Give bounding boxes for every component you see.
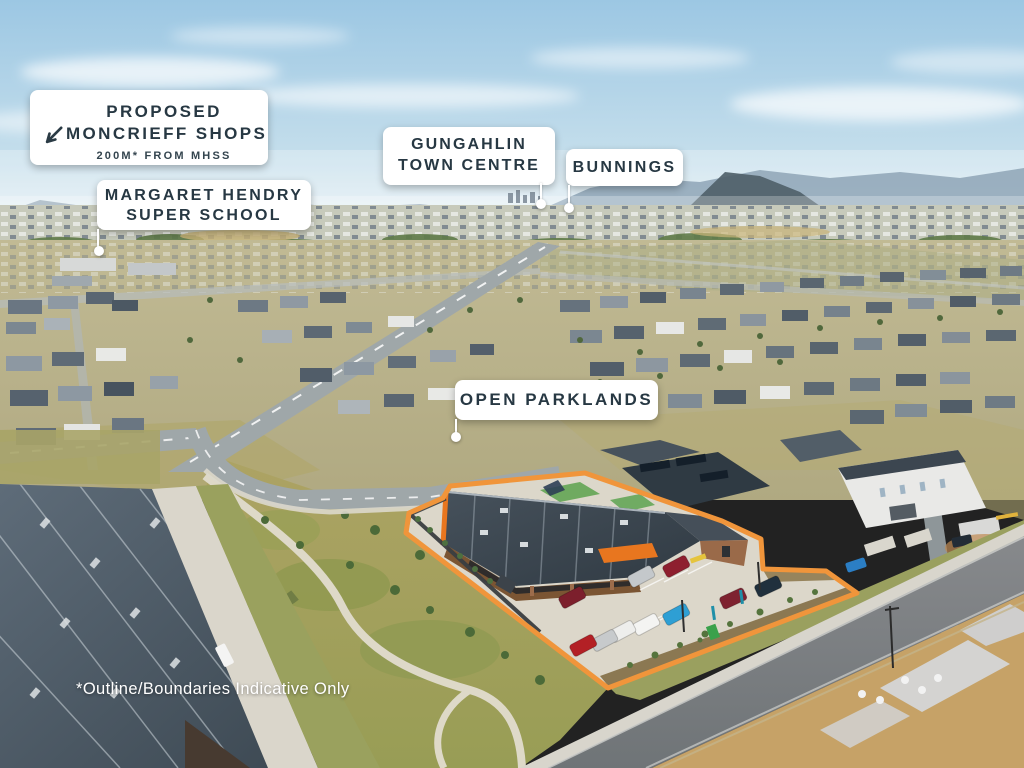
leader-dot-town-centre bbox=[536, 199, 546, 209]
parked-car-blue bbox=[845, 557, 867, 573]
aerial-marketing-image: PROPOSED MONCRIEFF SHOPS 200M* FROM MHSS… bbox=[0, 0, 1024, 768]
label-line: BUNNINGS bbox=[566, 149, 683, 186]
label-proposed-moncrieff-shops: PROPOSED MONCRIEFF SHOPS 200M* FROM MHSS bbox=[30, 90, 268, 165]
label-line: TOWN CENTRE bbox=[383, 156, 555, 177]
label-line: OPEN PARKLANDS bbox=[455, 380, 658, 420]
leader-dot-school bbox=[94, 246, 104, 256]
leader-dot-bunnings bbox=[564, 203, 574, 213]
label-gungahlin-town-centre: GUNGAHLIN TOWN CENTRE bbox=[383, 127, 555, 185]
disclaimer-text: *Outline/Boundaries Indicative Only bbox=[76, 680, 350, 699]
leader-line-town-centre bbox=[540, 183, 542, 200]
leader-line-bunnings bbox=[568, 185, 570, 204]
label-line: PROPOSED bbox=[66, 101, 262, 123]
label-line: MONCRIEFF SHOPS bbox=[66, 123, 262, 145]
label-margaret-hendry-super-school: MARGARET HENDRY SUPER SCHOOL bbox=[97, 180, 311, 230]
label-line: GUNGAHLIN bbox=[383, 135, 555, 156]
label-line: SUPER SCHOOL bbox=[97, 206, 311, 226]
leader-dot-parklands bbox=[451, 432, 461, 442]
label-bunnings: BUNNINGS bbox=[566, 149, 683, 186]
label-line: MARGARET HENDRY bbox=[97, 186, 311, 206]
label-subline: 200M* FROM MHSS bbox=[66, 149, 262, 163]
leader-line-school bbox=[97, 229, 99, 247]
leader-line-parklands bbox=[455, 419, 457, 433]
arrow-down-left-icon bbox=[39, 122, 67, 150]
label-open-parklands: OPEN PARKLANDS bbox=[455, 380, 658, 420]
